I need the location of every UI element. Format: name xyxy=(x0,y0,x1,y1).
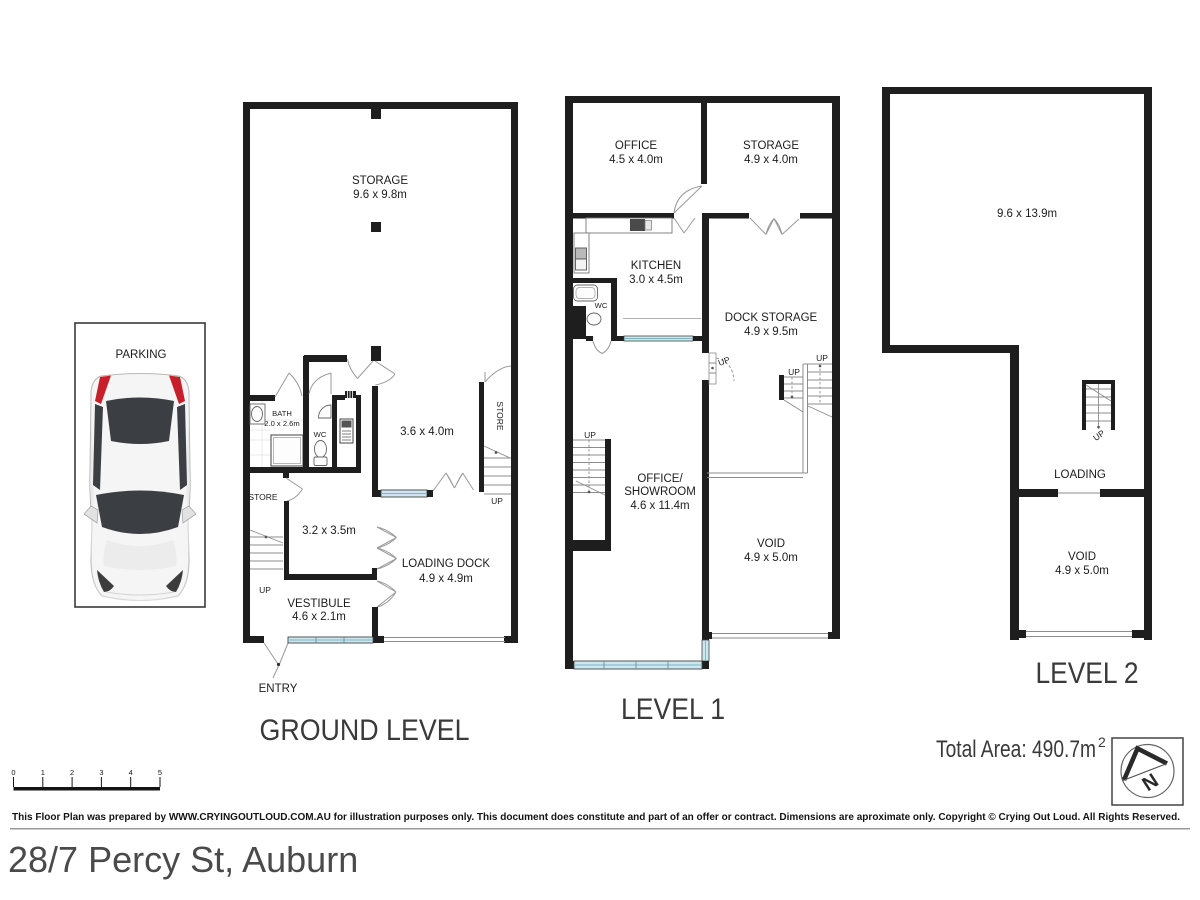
svg-text:STORE: STORE xyxy=(495,401,505,430)
svg-text:3.6 x 4.0m: 3.6 x 4.0m xyxy=(400,426,454,438)
svg-text:3.2 x 3.5m: 3.2 x 3.5m xyxy=(302,525,356,537)
svg-text:4.9 x 9.5m: 4.9 x 9.5m xyxy=(744,326,798,338)
svg-text:9.6 x 9.8m: 9.6 x 9.8m xyxy=(353,189,407,201)
svg-text:ENTRY: ENTRY xyxy=(259,683,298,695)
svg-text:3: 3 xyxy=(99,768,103,777)
svg-text:4.9 x 4.0m: 4.9 x 4.0m xyxy=(744,154,798,166)
svg-text:4.9 x 4.9m: 4.9 x 4.9m xyxy=(419,573,473,585)
svg-text:1: 1 xyxy=(41,768,45,777)
svg-text:PARKING: PARKING xyxy=(116,349,167,361)
svg-text:28/7 Percy St, Auburn: 28/7 Percy St, Auburn xyxy=(8,839,358,880)
svg-text:UP: UP xyxy=(259,585,271,595)
svg-text:4.5 x 4.0m: 4.5 x 4.0m xyxy=(609,154,663,166)
svg-text:0: 0 xyxy=(11,768,15,777)
svg-text:UP: UP xyxy=(816,353,828,363)
svg-text:4.9 x 5.0m: 4.9 x 5.0m xyxy=(744,552,798,564)
svg-text:VESTIBULE: VESTIBULE xyxy=(287,598,351,610)
svg-text:LOADING: LOADING xyxy=(1054,469,1106,481)
svg-text:VOID: VOID xyxy=(757,538,785,550)
svg-text:UP: UP xyxy=(584,430,596,440)
svg-text:LEVEL 2: LEVEL 2 xyxy=(1036,657,1139,690)
svg-text:Total Area: 490.7m: Total Area: 490.7m xyxy=(936,736,1096,763)
svg-text:4: 4 xyxy=(129,768,133,777)
svg-text:This Floor Plan was prepared b: This Floor Plan was prepared by WWW.CRYI… xyxy=(12,812,1180,823)
svg-text:VOID: VOID xyxy=(1068,551,1096,563)
svg-text:5: 5 xyxy=(158,768,162,777)
svg-text:WC: WC xyxy=(314,430,327,439)
svg-text:LOADING DOCK: LOADING DOCK xyxy=(402,558,491,570)
svg-text:KITCHEN: KITCHEN xyxy=(631,260,681,272)
svg-text:4.6 x 2.1m: 4.6 x 2.1m xyxy=(292,611,346,623)
svg-text:OFFICE/: OFFICE/ xyxy=(637,473,683,485)
svg-text:STORAGE: STORAGE xyxy=(352,175,408,187)
svg-text:STORAGE: STORAGE xyxy=(743,140,799,152)
svg-text:BATH: BATH xyxy=(272,409,292,418)
svg-text:9.6 x 13.9m: 9.6 x 13.9m xyxy=(997,208,1057,220)
svg-text:GROUND LEVEL: GROUND LEVEL xyxy=(260,714,470,747)
svg-text:4.9 x 5.0m: 4.9 x 5.0m xyxy=(1055,565,1109,577)
svg-text:UP: UP xyxy=(491,496,503,506)
svg-text:UP: UP xyxy=(788,367,800,377)
svg-text:LEVEL 1: LEVEL 1 xyxy=(621,693,725,726)
svg-text:2: 2 xyxy=(1098,734,1106,750)
svg-text:DOCK STORAGE: DOCK STORAGE xyxy=(725,312,818,324)
svg-text:4.6 x 11.4m: 4.6 x 11.4m xyxy=(630,500,689,512)
svg-text:3.0 x 4.5m: 3.0 x 4.5m xyxy=(629,274,683,286)
svg-text:2: 2 xyxy=(70,768,74,777)
svg-text:SHOWROOM: SHOWROOM xyxy=(624,486,696,498)
svg-text:OFFICE: OFFICE xyxy=(615,140,657,152)
svg-text:WC: WC xyxy=(595,301,608,310)
svg-text:STORE: STORE xyxy=(248,492,277,502)
